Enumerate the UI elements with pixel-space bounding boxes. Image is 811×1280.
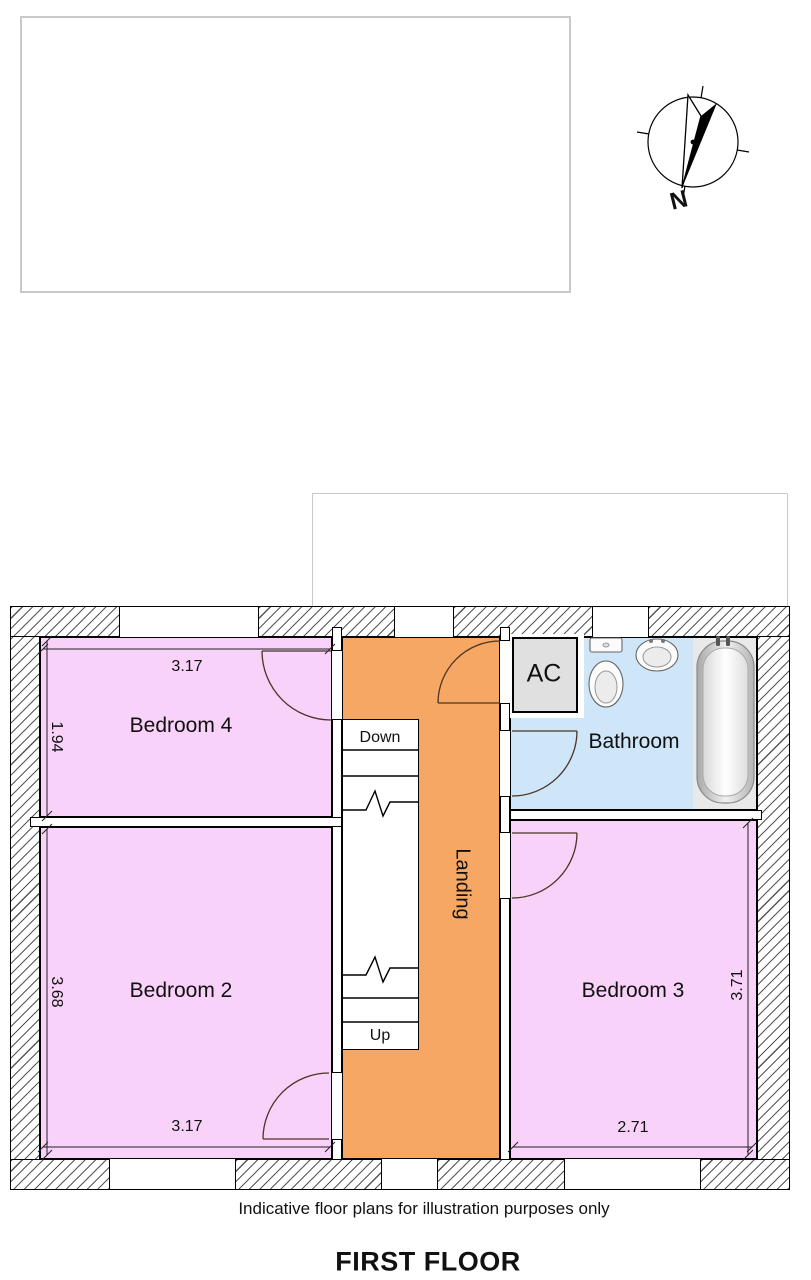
wall-bottom-segment bbox=[235, 1159, 382, 1190]
stairs-up-label: Up bbox=[370, 1027, 390, 1045]
wall-bottom-segment bbox=[437, 1159, 565, 1190]
wall-top-segment bbox=[453, 606, 593, 637]
wall-segment bbox=[510, 810, 762, 820]
dimension-bedroom2-height: 3.68 bbox=[47, 976, 65, 1007]
room-label-bedroom-4: Bedroom 4 bbox=[130, 714, 233, 738]
wall-segment bbox=[332, 1139, 342, 1160]
stairs-down-label: Down bbox=[360, 729, 401, 747]
dimension-bedroom3-width: 2.71 bbox=[617, 1119, 648, 1137]
wall-bottom-segment bbox=[10, 1159, 110, 1190]
page-title: FIRST FLOOR bbox=[335, 1247, 520, 1278]
room-label-landing: Landing bbox=[451, 848, 474, 919]
photo-placeholder-middle bbox=[312, 493, 788, 607]
dimension-bedroom4-height: 1.94 bbox=[47, 721, 65, 752]
staircase bbox=[342, 719, 419, 1050]
wall-segment bbox=[500, 796, 510, 833]
compass-north-label: N bbox=[667, 185, 691, 216]
dimension-bedroom2-width: 3.17 bbox=[171, 1118, 202, 1136]
wall-segment bbox=[500, 703, 510, 731]
wall-segment bbox=[30, 817, 342, 827]
floor-plan-page: Bedroom 4 Bedroom 2 Bedroom 3 Bathroom A… bbox=[0, 0, 811, 1280]
wall-segment bbox=[500, 627, 510, 641]
dimension-bedroom4-width: 3.17 bbox=[171, 658, 202, 676]
bathtub-platform bbox=[693, 638, 756, 809]
wall-right bbox=[757, 606, 790, 1190]
wall-bottom-segment bbox=[700, 1159, 790, 1190]
dimension-bedroom3-height: 3.71 bbox=[729, 969, 747, 1000]
wall-segment bbox=[332, 719, 342, 1073]
wall-left bbox=[10, 606, 40, 1190]
compass-icon bbox=[637, 86, 749, 198]
photo-placeholder-top bbox=[20, 16, 571, 293]
wall-segment bbox=[332, 627, 342, 651]
room-label-bedroom-2: Bedroom 2 bbox=[130, 979, 233, 1003]
disclaimer-text: Indicative floor plans for illustration … bbox=[238, 1199, 609, 1219]
wall-top-segment bbox=[10, 606, 120, 637]
wall-segment bbox=[500, 898, 510, 1160]
wall-top-segment bbox=[648, 606, 790, 637]
room-label-bathroom: Bathroom bbox=[588, 730, 679, 754]
wall-top-segment bbox=[258, 606, 395, 637]
room-label-bedroom-3: Bedroom 3 bbox=[582, 979, 685, 1003]
room-label-airing-cupboard: AC bbox=[527, 660, 562, 689]
